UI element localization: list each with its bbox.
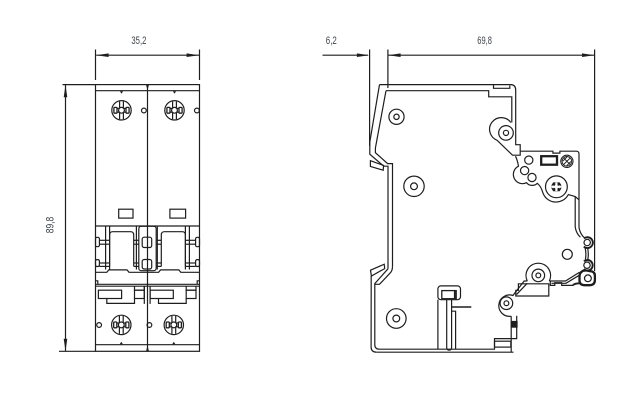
svg-text:69,8: 69,8 — [477, 35, 492, 47]
svg-text:6,2: 6,2 — [326, 35, 337, 47]
svg-text:89,8: 89,8 — [45, 217, 57, 234]
svg-text:35,2: 35,2 — [131, 35, 146, 47]
